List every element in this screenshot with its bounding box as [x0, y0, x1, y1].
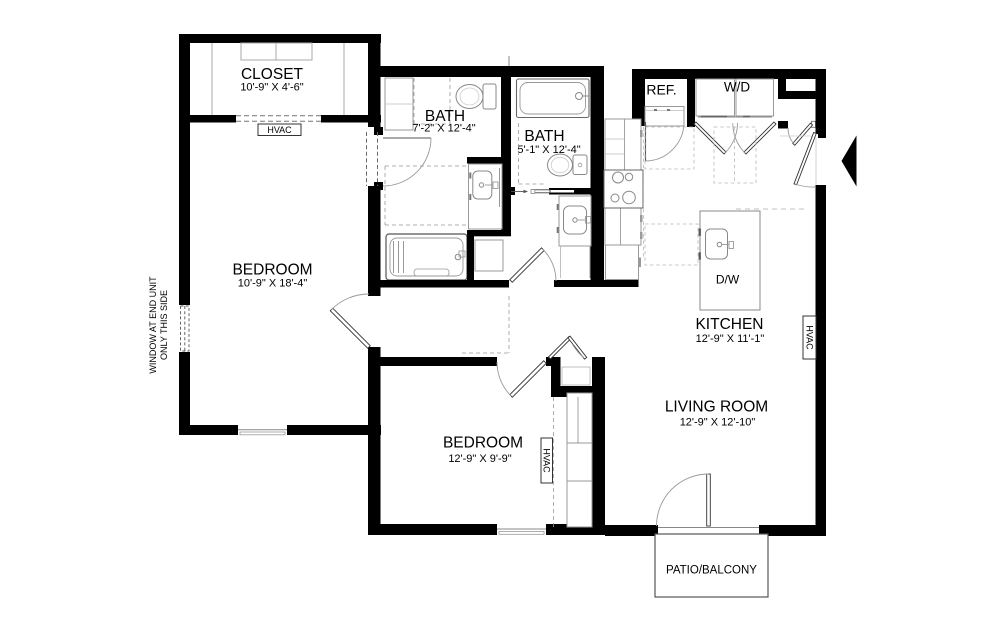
svg-text:HVAC: HVAC	[542, 448, 552, 473]
svg-text:KITCHEN: KITCHEN	[695, 316, 763, 333]
svg-text:BEDROOM: BEDROOM	[232, 262, 312, 279]
svg-text:12'-9" X 9'-9": 12'-9" X 9'-9"	[448, 453, 511, 465]
svg-text:BATH: BATH	[524, 128, 564, 145]
svg-text:12'-9" X 12'-10": 12'-9" X 12'-10"	[680, 417, 756, 429]
svg-text:REF.: REF.	[646, 82, 676, 98]
svg-text:WINDOW AT END UNIT: WINDOW AT END UNIT	[148, 276, 158, 374]
svg-text:ONLY THIS SIDE: ONLY THIS SIDE	[159, 290, 169, 360]
svg-text:HVAC: HVAC	[267, 125, 292, 135]
svg-text:12'-9" X 11'-1": 12'-9" X 11'-1"	[696, 333, 765, 345]
svg-text:10'-9" X 18'-4": 10'-9" X 18'-4"	[238, 278, 308, 290]
svg-text:10'-9" X 4'-6": 10'-9" X 4'-6"	[240, 82, 303, 94]
svg-text:LIVING ROOM: LIVING ROOM	[665, 399, 768, 416]
svg-text:HVAC: HVAC	[805, 325, 815, 350]
svg-text:CLOSET: CLOSET	[241, 66, 304, 83]
svg-text:W/D: W/D	[724, 80, 750, 95]
svg-text:BEDROOM: BEDROOM	[443, 435, 523, 452]
svg-text:7'-2" X 12'-4": 7'-2" X 12'-4"	[412, 123, 475, 135]
svg-text:5'-1" X 12'-4": 5'-1" X 12'-4"	[517, 144, 580, 156]
svg-text:D/W: D/W	[716, 273, 740, 287]
svg-text:PATIO/BALCONY: PATIO/BALCONY	[666, 565, 757, 577]
